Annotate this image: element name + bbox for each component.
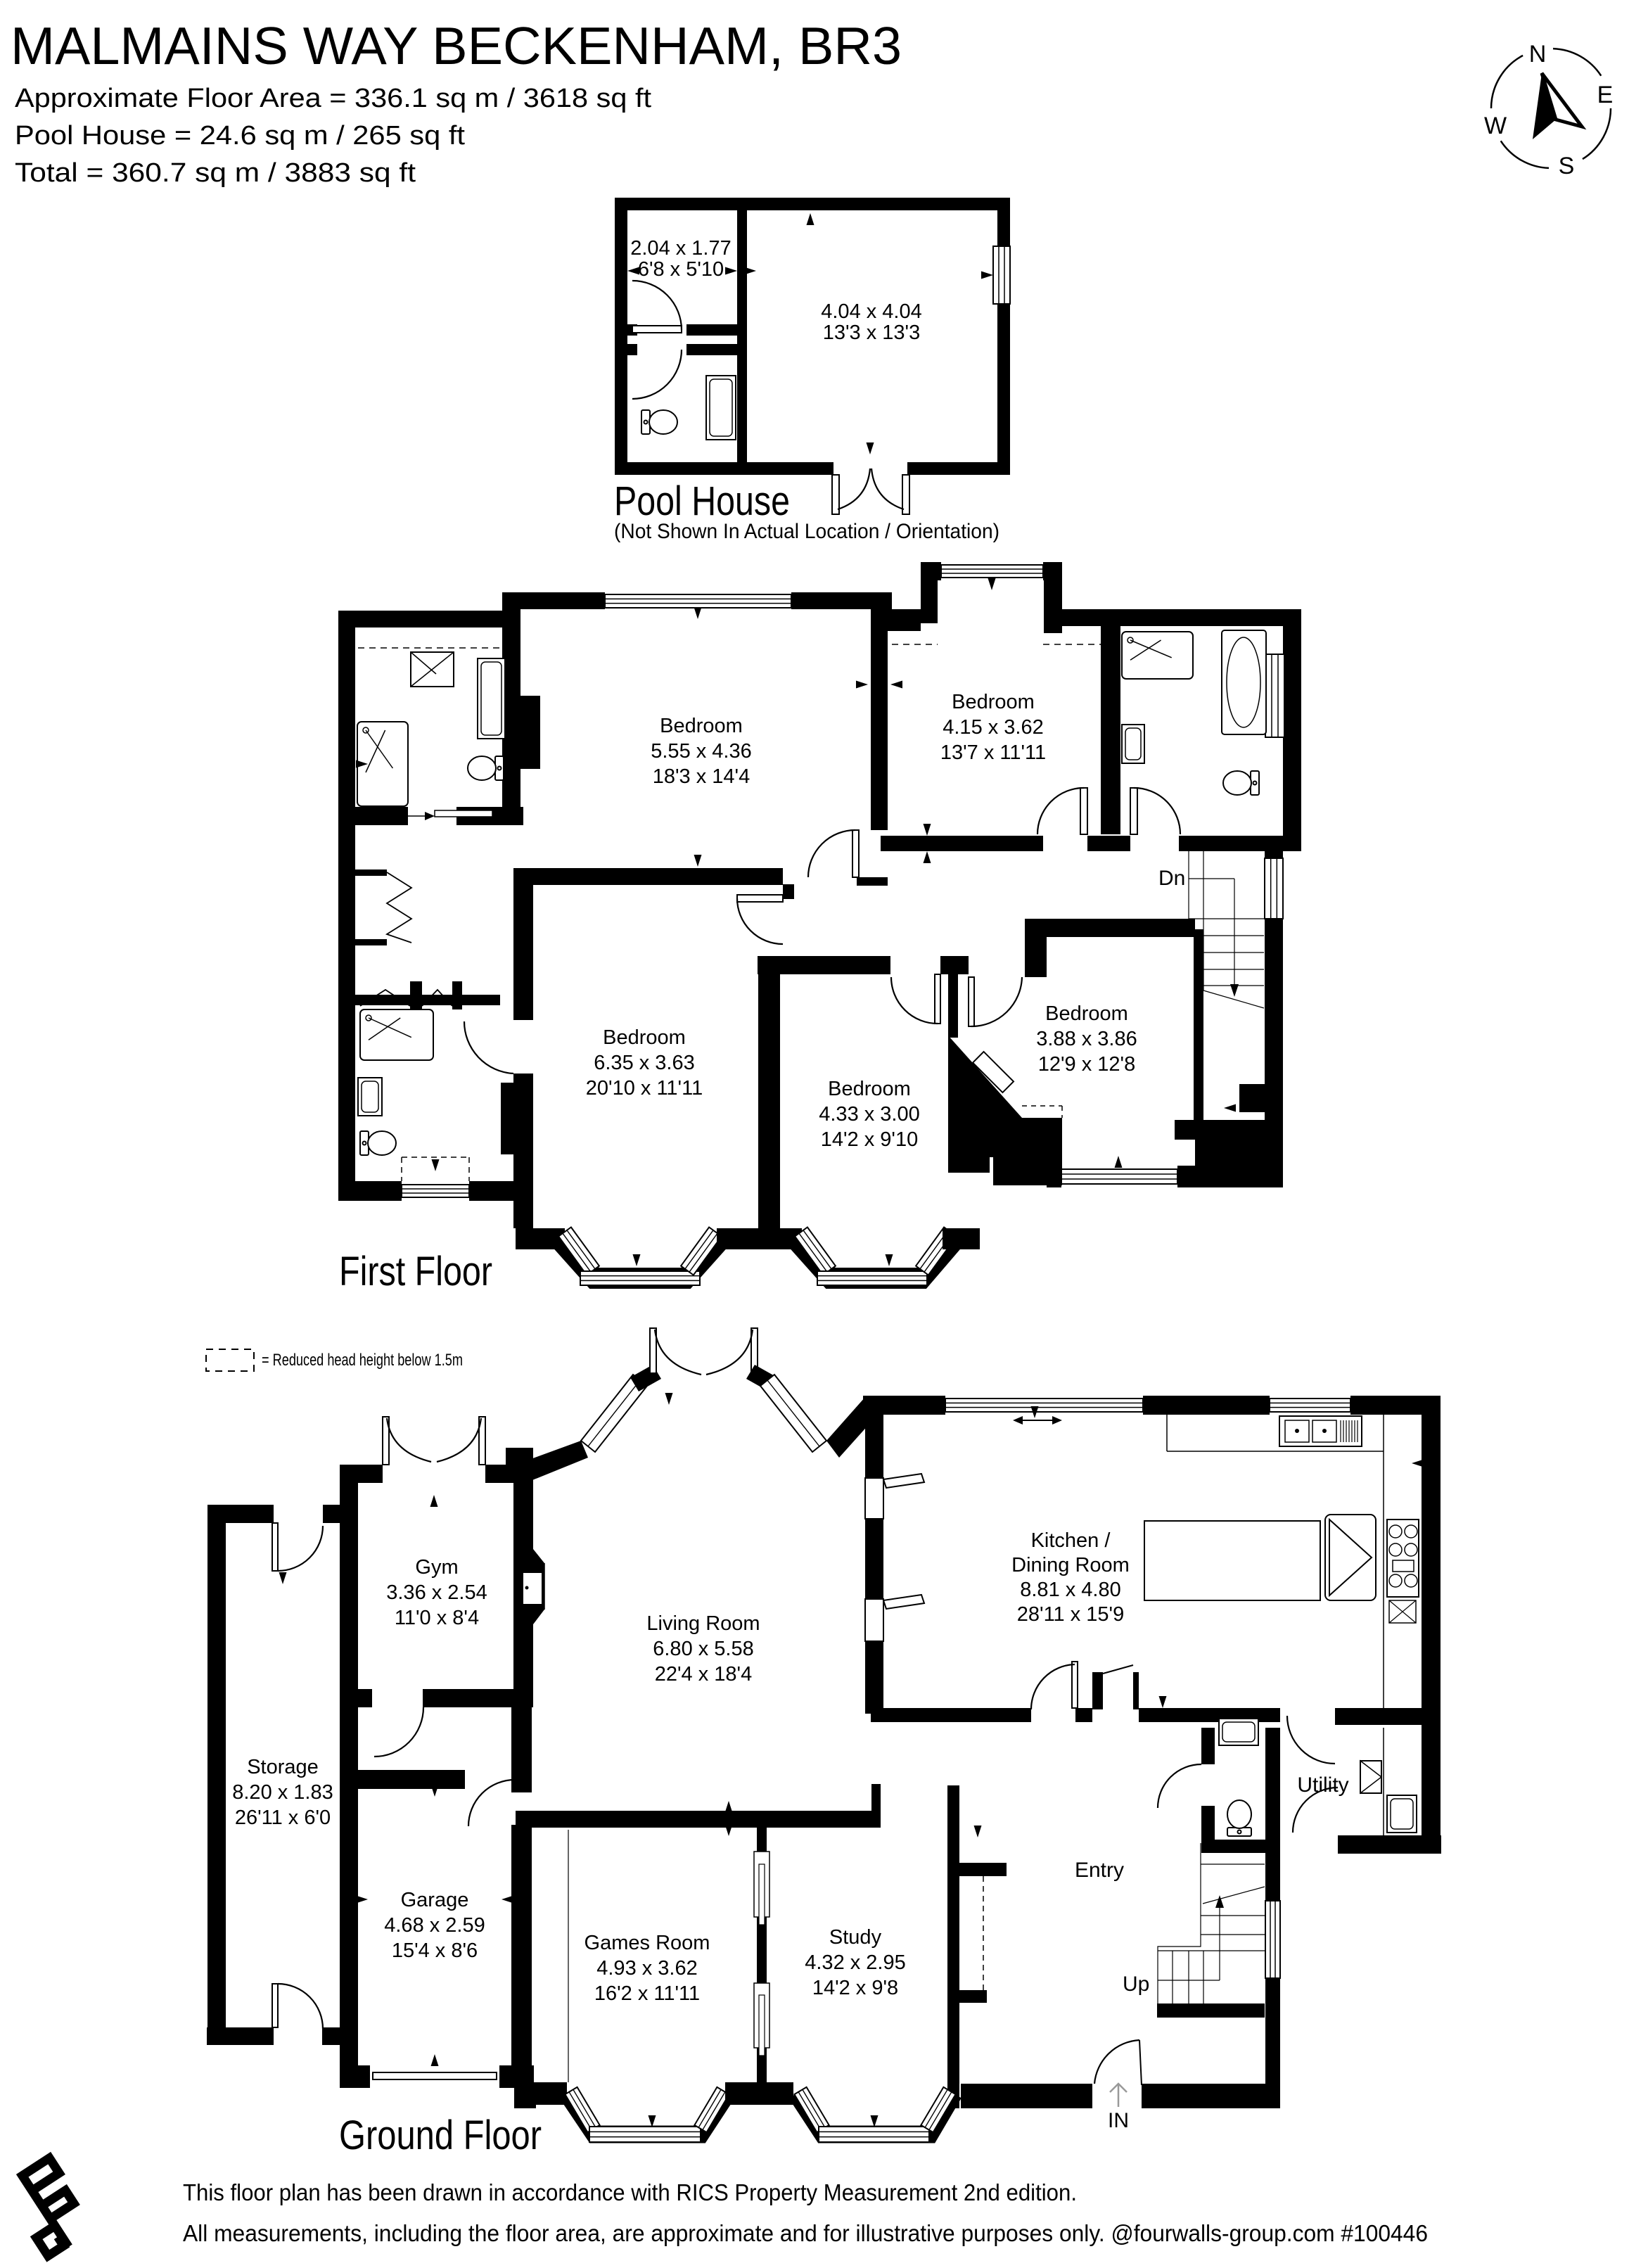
svg-text:Entry: Entry [1075, 1859, 1124, 1882]
svg-text:4.32 x 2.95: 4.32 x 2.95 [805, 1951, 906, 1974]
svg-text:8.81 x 4.80: 8.81 x 4.80 [1020, 1579, 1121, 1601]
svg-text:20'10 x 11'11: 20'10 x 11'11 [586, 1077, 703, 1100]
svg-text:Study: Study [829, 1926, 882, 1949]
svg-text:4.68 x 2.59: 4.68 x 2.59 [384, 1914, 485, 1937]
svg-text:Gym: Gym [415, 1556, 458, 1579]
svg-text:15'4 x 8'6: 15'4 x 8'6 [392, 1939, 478, 1962]
svg-text:3.88 x 3.86: 3.88 x 3.86 [1036, 1028, 1137, 1050]
svg-text:S: S [1559, 153, 1575, 179]
svg-text:Total = 360.7 sq m / 3883 sq f: Total = 360.7 sq m / 3883 sq ft [15, 158, 416, 188]
svg-text:= Reduced head height below 1.: = Reduced head height below 1.5m [262, 1351, 463, 1370]
svg-text:Ground Floor: Ground Floor [339, 2113, 542, 2158]
svg-text:E: E [1597, 82, 1614, 108]
svg-text:Bedroom: Bedroom [603, 1026, 686, 1049]
svg-text:First Floor: First Floor [339, 1249, 492, 1294]
svg-text:Up: Up [1123, 1973, 1149, 1996]
svg-text:Utility: Utility [1297, 1773, 1348, 1797]
svg-text:4.93 x 3.62: 4.93 x 3.62 [596, 1957, 698, 1980]
svg-text:8.20 x 1.83: 8.20 x 1.83 [232, 1781, 333, 1804]
svg-text:Kitchen /: Kitchen / [1031, 1529, 1111, 1552]
svg-text:Pool House = 24.6 sq m / 265 s: Pool House = 24.6 sq m / 265 sq ft [15, 121, 465, 151]
svg-text:5.55 x 4.36: 5.55 x 4.36 [651, 740, 752, 763]
svg-text:IN: IN [1108, 2109, 1129, 2132]
svg-text:Games Room: Games Room [585, 1932, 710, 1954]
svg-text:Dn: Dn [1158, 867, 1185, 890]
svg-text:28'11 x 15'9: 28'11 x 15'9 [1017, 1603, 1124, 1626]
svg-text:Bedroom: Bedroom [952, 691, 1035, 713]
svg-text:4.15 x 3.62: 4.15 x 3.62 [943, 716, 1044, 739]
svg-text:Approximate Floor Area = 336.1: Approximate Floor Area = 336.1 sq m / 36… [15, 84, 651, 113]
svg-text:Pool House: Pool House [614, 478, 790, 524]
svg-text:4.04 x 4.04: 4.04 x 4.04 [821, 300, 922, 323]
svg-text:This floor plan has been drawn: This floor plan has been drawn in accord… [183, 2179, 1077, 2205]
svg-text:6'8 x 5'10: 6'8 x 5'10 [638, 258, 724, 281]
svg-text:14'2 x 9'8: 14'2 x 9'8 [812, 1977, 898, 1999]
svg-text:12'9 x 12'8: 12'9 x 12'8 [1038, 1053, 1135, 1076]
svg-text:26'11 x 6'0: 26'11 x 6'0 [235, 1807, 331, 1829]
svg-text:Garage: Garage [401, 1889, 469, 1911]
svg-text:3.36 x 2.54: 3.36 x 2.54 [386, 1581, 487, 1604]
svg-text:(Not Shown In Actual Location: (Not Shown In Actual Location / Orientat… [614, 520, 999, 543]
svg-text:2.04 x 1.77: 2.04 x 1.77 [630, 237, 732, 260]
svg-text:11'0 x 8'4: 11'0 x 8'4 [395, 1607, 479, 1629]
svg-text:Storage: Storage [247, 1756, 319, 1778]
svg-text:13'3 x 13'3: 13'3 x 13'3 [823, 321, 920, 344]
svg-text:13'7 x 11'11: 13'7 x 11'11 [940, 741, 1046, 764]
svg-text:Living Room: Living Room [646, 1612, 760, 1635]
svg-text:18'3 x 14'4: 18'3 x 14'4 [653, 765, 750, 788]
svg-text:Bedroom: Bedroom [1045, 1002, 1128, 1025]
svg-text:16'2 x 11'11: 16'2 x 11'11 [594, 1982, 700, 2005]
svg-text:Bedroom: Bedroom [660, 715, 743, 737]
svg-text:22'4 x 18'4: 22'4 x 18'4 [655, 1663, 752, 1686]
svg-text:Dining Room: Dining Room [1011, 1554, 1130, 1576]
svg-text:All measurements, including th: All measurements, including the floor ar… [183, 2220, 1428, 2246]
svg-text:6.80 x 5.58: 6.80 x 5.58 [653, 1638, 754, 1660]
svg-text:6.35 x 3.63: 6.35 x 3.63 [594, 1052, 695, 1074]
svg-text:W: W [1484, 113, 1507, 139]
svg-text:N: N [1529, 41, 1547, 68]
svg-text:MALMAINS WAY BECKENHAM, BR3: MALMAINS WAY BECKENHAM, BR3 [11, 16, 902, 75]
svg-text:Bedroom: Bedroom [828, 1078, 911, 1100]
svg-text:4.33 x 3.00: 4.33 x 3.00 [819, 1103, 920, 1126]
svg-text:14'2 x 9'10: 14'2 x 9'10 [821, 1128, 918, 1151]
